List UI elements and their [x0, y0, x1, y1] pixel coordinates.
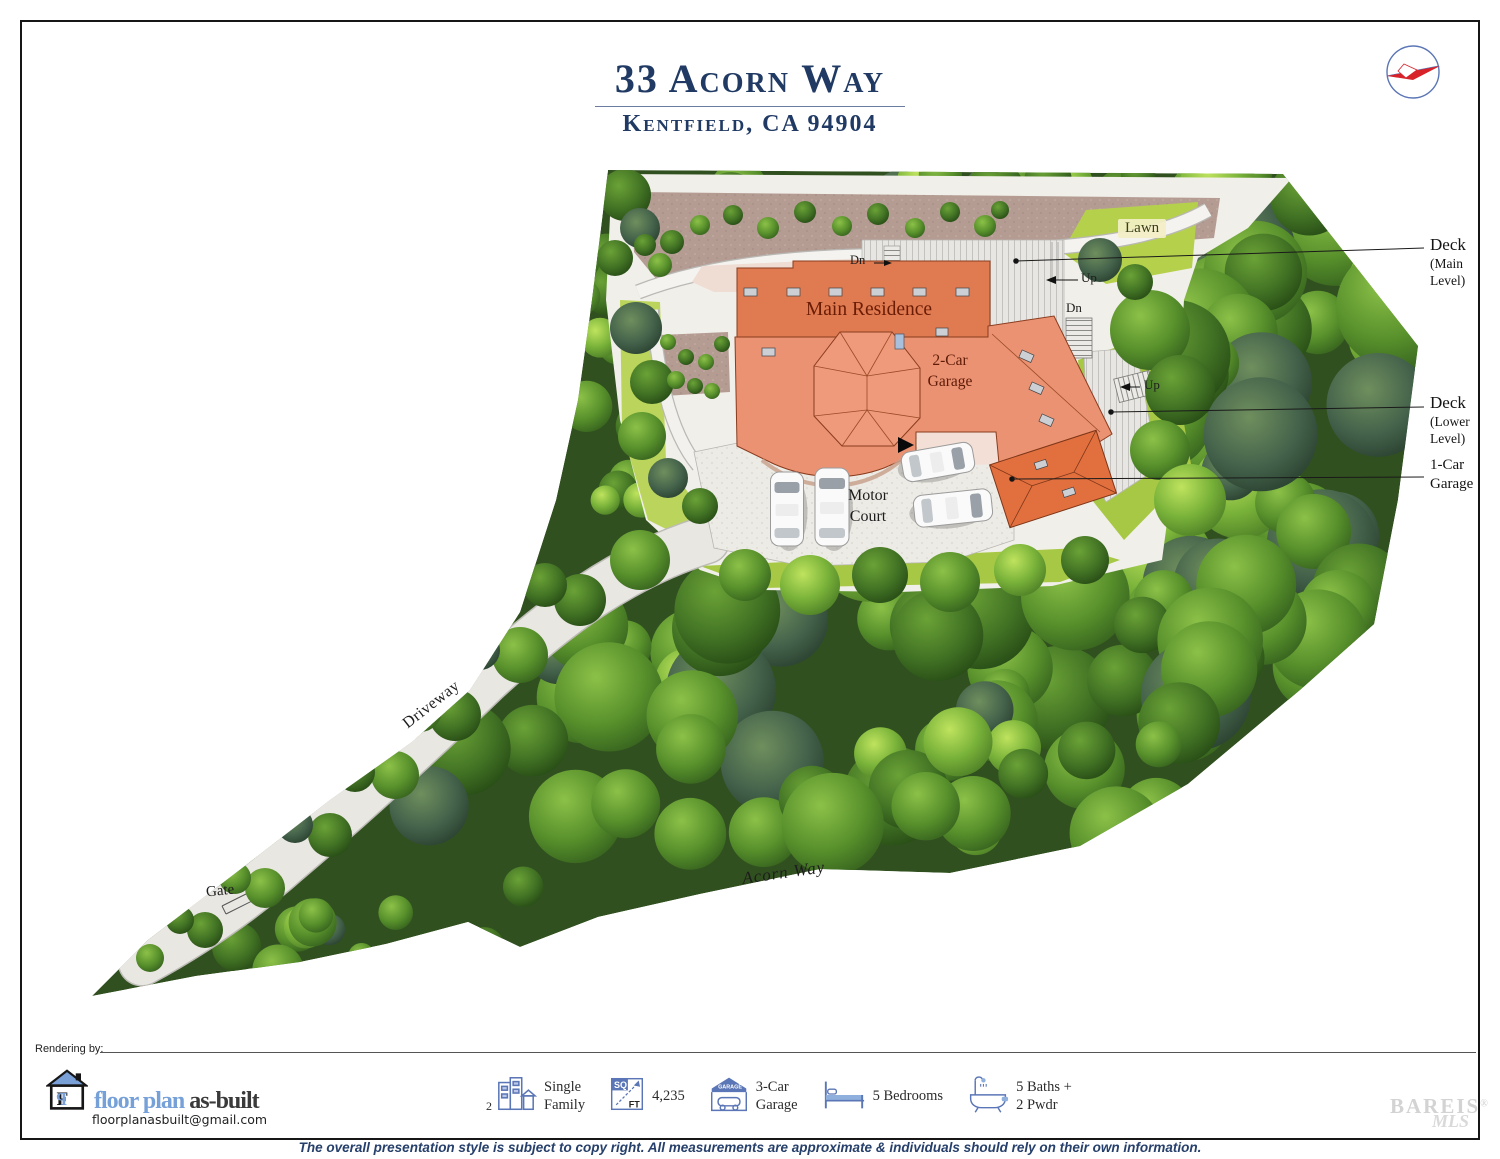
subtitle-city: Kentfield, CA 94904	[470, 111, 1030, 138]
lawn-label: Lawn	[1118, 219, 1166, 238]
gate-label: Gate	[205, 882, 235, 902]
title-block: 33 Acorn Way Kentfield, CA 94904	[470, 58, 1030, 138]
callout-one-car-garage: 1-Car Garage	[1430, 456, 1473, 494]
compass-icon	[1380, 42, 1446, 111]
svg-text:SQ: SQ	[614, 1080, 627, 1090]
brand-logo: F P floor planas-built	[46, 1068, 259, 1117]
dn-label-top: Dn	[850, 253, 865, 268]
up-label-main: Up	[1081, 270, 1097, 286]
copyright-disclaimer: The overall presentation style is subjec…	[0, 1140, 1500, 1155]
rendering-by-label: Rendering by:	[35, 1043, 104, 1055]
main-residence-label: Main Residence	[792, 299, 946, 321]
house-logo-icon: F P	[46, 1068, 88, 1117]
car	[771, 472, 808, 551]
svg-text:P: P	[56, 1089, 67, 1109]
bed-icon	[822, 1077, 866, 1116]
stat-square-feet: SQ FT 4,235	[609, 1076, 685, 1117]
up-label-lower: Up	[1144, 377, 1160, 393]
brand-email: floorplanasbuilt@gmail.com	[92, 1112, 267, 1127]
stat-bathrooms: 5 Baths + 2 Pwdr	[967, 1074, 1072, 1119]
page: 33 Acorn Way Kentfield, CA 94904	[0, 0, 1500, 1159]
svg-text:FT: FT	[629, 1099, 640, 1109]
garage-icon: GARAGE	[709, 1074, 749, 1119]
stat-bedrooms: 5 Bedrooms	[822, 1077, 943, 1116]
bath-icon	[967, 1074, 1009, 1119]
stat-garage: GARAGE 3-Car Garage	[709, 1074, 798, 1119]
dn-label-main: Dn	[1066, 300, 1082, 316]
motor-court-label: Motor Court	[834, 486, 902, 528]
callout-deck-lower-level: Deck (Lower Level)	[1430, 393, 1470, 448]
mls-watermark: BAREIS® MLS	[1390, 1096, 1488, 1117]
svg-text:GARAGE: GARAGE	[718, 1084, 742, 1090]
property-stats: 2 Single Family SQ FT	[486, 1070, 1072, 1122]
stat-single-family: 2 Single Family	[486, 1073, 585, 1120]
two-car-garage-label: 2-Car Garage	[906, 351, 994, 393]
site-plan-svg	[0, 0, 1500, 1159]
title-underline	[595, 106, 905, 107]
buildings-icon	[495, 1073, 537, 1120]
rendering-rule	[100, 1052, 1476, 1053]
callout-deck-main-level: Deck (Main Level)	[1430, 235, 1466, 290]
page-title: 33 Acorn Way	[470, 58, 1030, 100]
sqft-icon: SQ FT	[609, 1076, 645, 1117]
